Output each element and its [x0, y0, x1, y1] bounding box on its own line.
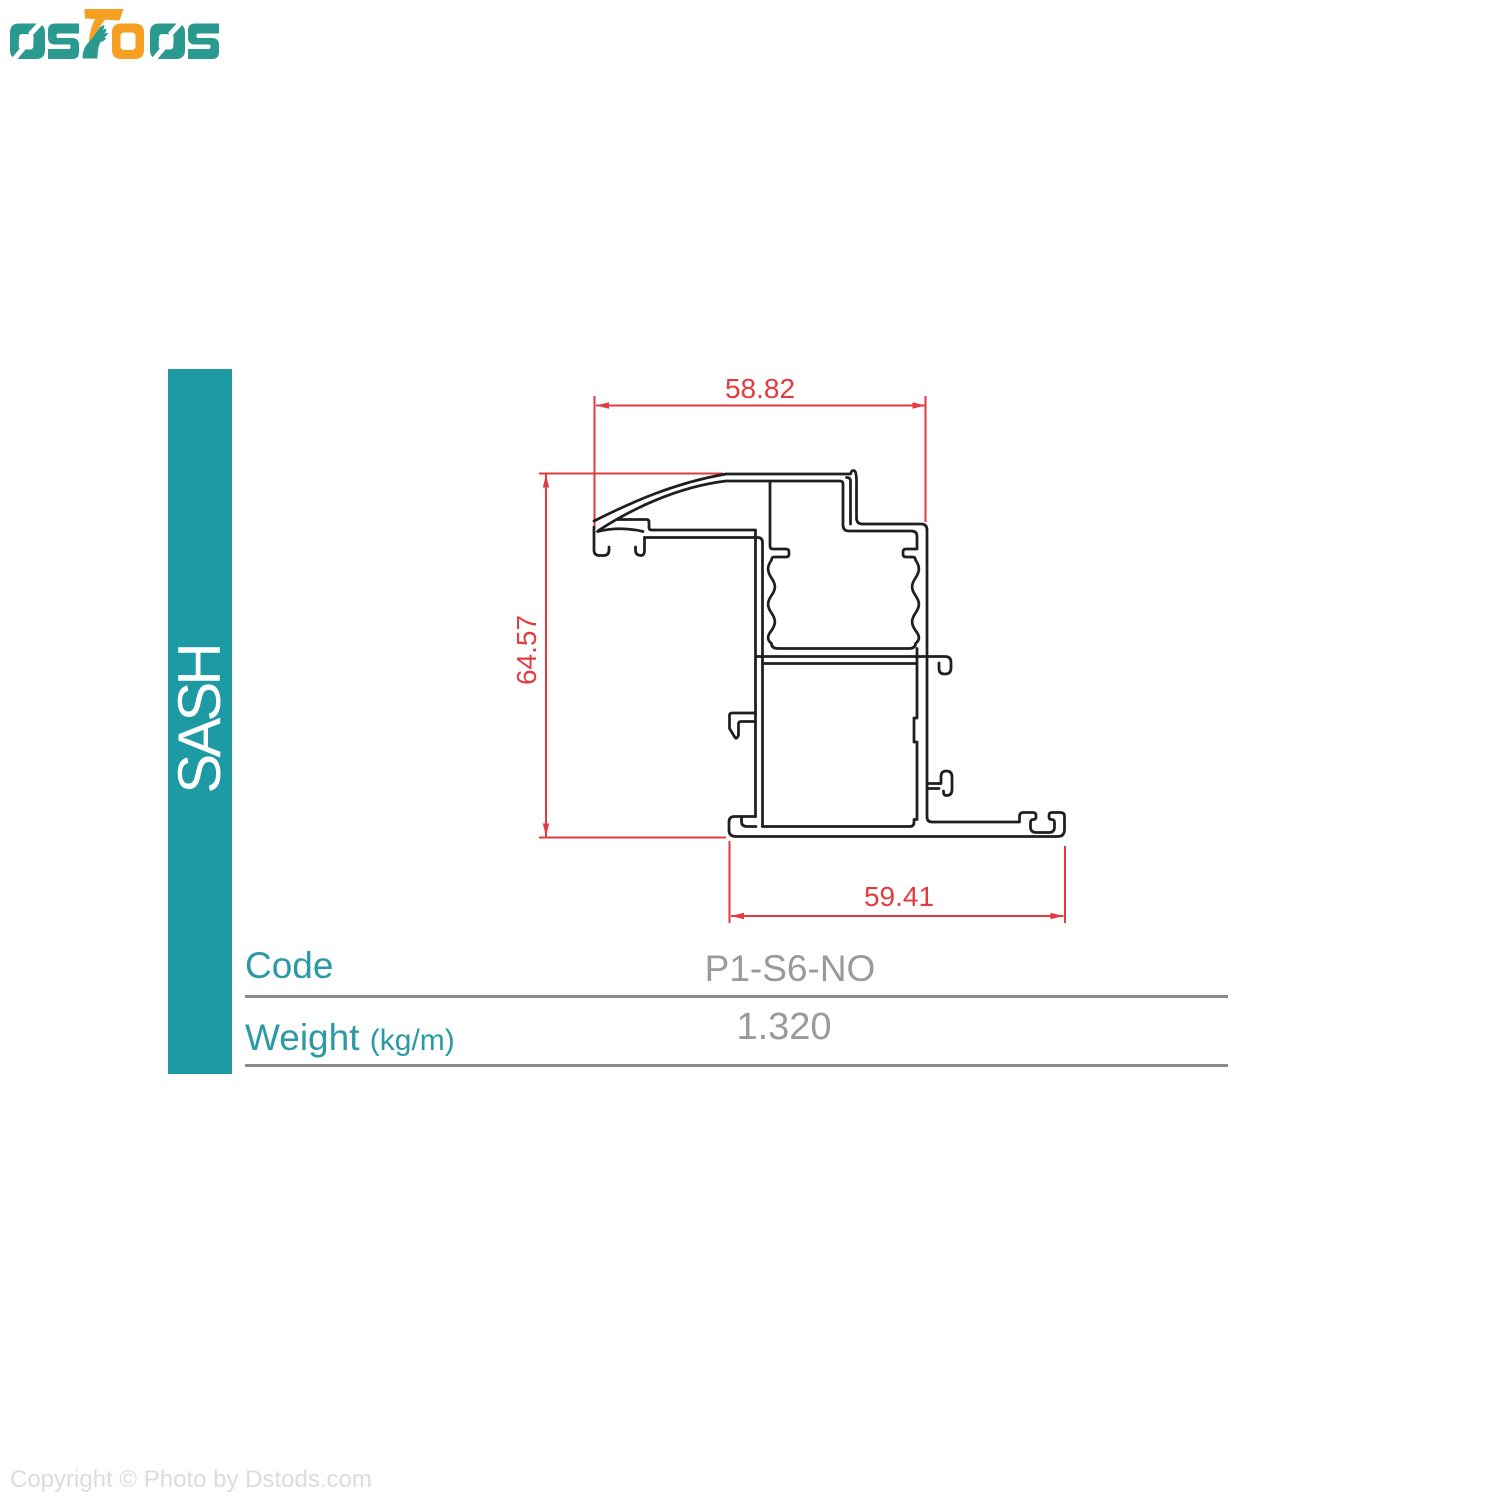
- svg-text:59.41: 59.41: [864, 881, 934, 912]
- svg-text:64.57: 64.57: [511, 615, 542, 685]
- svg-text:58.82: 58.82: [725, 373, 795, 404]
